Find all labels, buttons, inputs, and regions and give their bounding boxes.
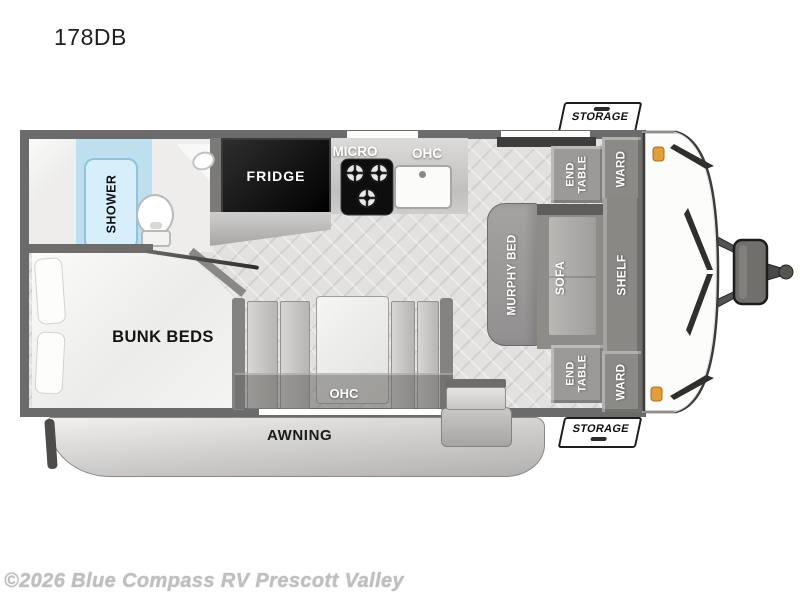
bunk-pillow-top	[34, 257, 67, 325]
storage-label: STORAGE	[571, 423, 630, 435]
murphy-bed: MURPHY BED	[487, 203, 538, 346]
awning-label: AWNING	[267, 427, 332, 444]
shower-pan: SHOWER	[84, 158, 138, 250]
storage-handle-icon	[590, 437, 607, 441]
end-table-top: END TABLE	[551, 146, 603, 203]
window-dinette	[259, 409, 446, 415]
entry-step-lower	[441, 407, 512, 447]
window-kitchen	[347, 131, 418, 138]
shower-label: SHOWER	[104, 175, 118, 234]
fridge: FRIDGE	[221, 138, 331, 214]
fridge-label: FRIDGE	[247, 168, 306, 184]
ohc-kitchen-label: OHC	[404, 146, 450, 161]
front-cap-and-hitch	[628, 124, 800, 420]
kitchen-faucet	[419, 171, 426, 178]
wardrobe-label: WARD	[616, 363, 628, 400]
sofa-label-box: SOFA	[540, 205, 580, 351]
model-title: 178DB	[54, 24, 127, 51]
shelf: SHELF	[603, 198, 641, 351]
end-table-label: END TABLE	[565, 351, 588, 397]
bathroom-wall-bottom	[29, 244, 153, 253]
bunk-pillow-bottom	[34, 331, 65, 394]
wardrobe-bottom: WARD	[602, 351, 641, 412]
murphy-bed-label: MURPHY BED	[507, 234, 519, 315]
wardrobe-label: WARD	[616, 151, 628, 188]
dealer-watermark: ©2026 Blue Compass RV Prescott Valley	[4, 570, 404, 593]
stove-cooktop	[340, 158, 394, 216]
toilet-flush	[150, 222, 162, 229]
storage-label: STORAGE	[571, 111, 630, 123]
microwave-label: MICRO	[326, 144, 384, 159]
storage-compartment-bottom: STORAGE	[558, 417, 643, 448]
wardrobe-top: WARD	[602, 137, 641, 201]
bunk-beds-label: BUNK BEDS	[108, 328, 218, 347]
end-table-bottom: END TABLE	[551, 345, 603, 403]
fridge-side-wall	[210, 138, 221, 216]
entry-step-upper	[446, 387, 506, 410]
dinette-overhead-cabinet: OHC	[235, 373, 453, 409]
end-table-label: END TABLE	[565, 152, 588, 198]
floorplan-page: { "title": "178DB", "watermark": "©2026 …	[0, 0, 800, 600]
shelf-label: SHELF	[615, 254, 629, 295]
ohc-dinette-label: OHC	[330, 386, 359, 401]
sofa-label: SOFA	[553, 261, 567, 295]
